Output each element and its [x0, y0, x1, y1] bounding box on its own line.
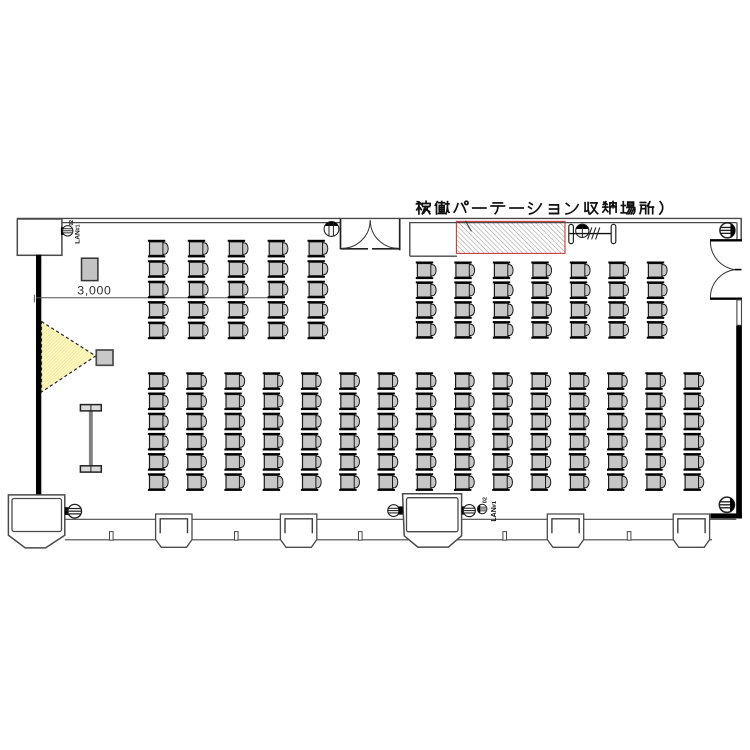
svg-text:LAN#1: LAN#1 — [491, 501, 498, 522]
svg-text:02: 02 — [69, 220, 75, 226]
svg-text:3,000: 3,000 — [77, 283, 111, 297]
svg-text:02: 02 — [483, 497, 489, 503]
svg-text:LAN#1: LAN#1 — [75, 224, 82, 243]
